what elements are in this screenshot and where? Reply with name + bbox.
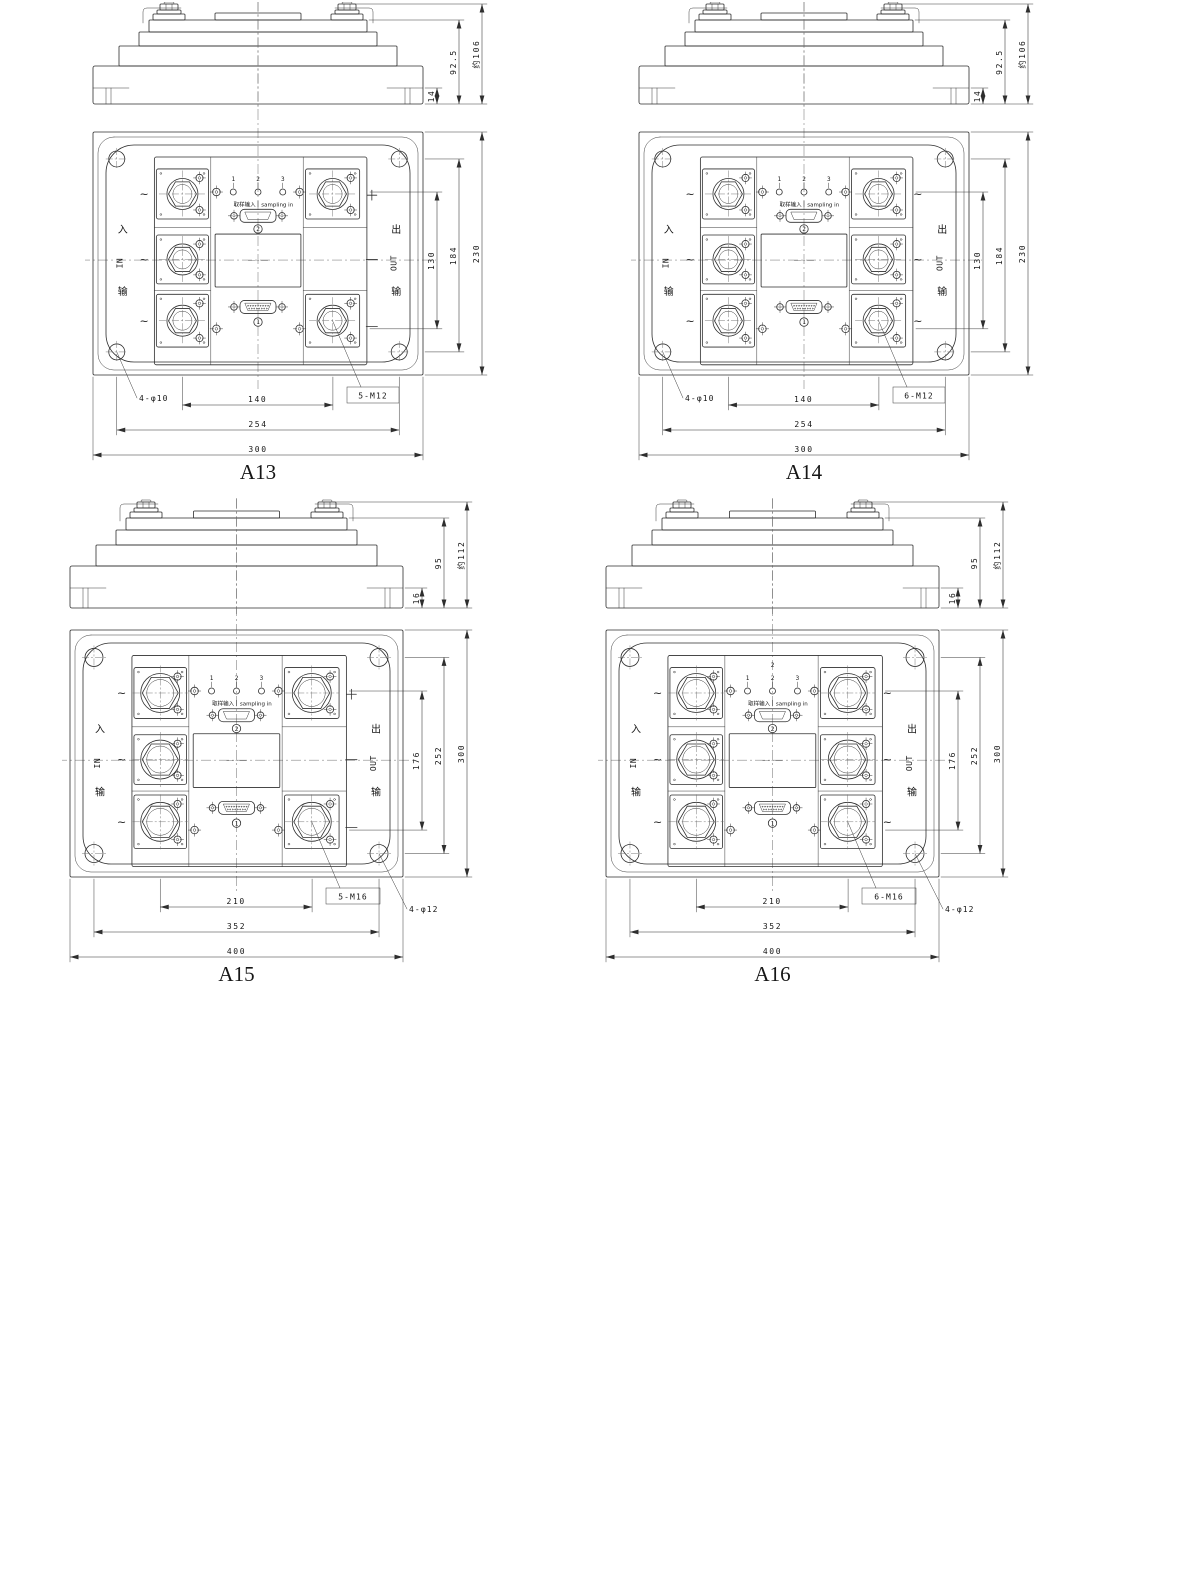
svg-text:300: 300: [794, 445, 813, 454]
svg-text:OUT: OUT: [369, 755, 378, 771]
svg-text:IN: IN: [662, 258, 671, 269]
svg-text:取样输入: 取样输入: [234, 200, 257, 208]
a16-drawing: 1695约112~~~~~~入IN输出OUT输123取样输入sampling i…: [598, 498, 1038, 992]
horizontal-dimensions: 210352400: [70, 879, 403, 962]
svg-text:1: 1: [256, 319, 260, 326]
svg-text:230: 230: [472, 244, 481, 263]
svg-text:1: 1: [777, 176, 781, 183]
svg-text:210: 210: [763, 897, 782, 906]
top-view: ~~~: [62, 498, 416, 891]
svg-text:~: ~: [913, 253, 922, 266]
svg-text:95: 95: [970, 557, 979, 570]
svg-text:sampling in: sampling in: [240, 702, 272, 708]
svg-text:2: 2: [235, 675, 239, 682]
svg-text:3: 3: [281, 176, 285, 183]
svg-text:400: 400: [763, 947, 782, 956]
svg-text:1: 1: [802, 319, 806, 326]
svg-text:~: ~: [913, 187, 922, 200]
figure-a16: 1695约112~~~~~~入IN输出OUT输123取样输入sampling i…: [598, 498, 1038, 996]
svg-text:3: 3: [827, 176, 831, 183]
top-view: ~~~~~~: [631, 2, 982, 389]
svg-text:252: 252: [970, 746, 979, 765]
figure-title: A16: [754, 962, 790, 986]
vertical-dimensions: 130184230: [916, 132, 1033, 375]
svg-text:入: 入: [95, 725, 105, 736]
svg-text:2: 2: [256, 176, 260, 183]
svg-text:~: ~: [140, 187, 149, 200]
svg-text:取样输入: 取样输入: [212, 700, 235, 708]
svg-text:254: 254: [248, 420, 267, 429]
a13-drawing: 1492.5约106~~~入IN输出OUT输123取样输入sampling in…: [85, 2, 505, 496]
svg-text:3: 3: [260, 675, 264, 682]
svg-text:sampling in: sampling in: [776, 702, 808, 708]
drawing-sheet: 1492.5约106~~~入IN输出OUT输123取样输入sampling in…: [0, 0, 1200, 1596]
svg-text:出: 出: [937, 223, 947, 236]
svg-text:14: 14: [427, 90, 436, 103]
svg-text:~: ~: [686, 187, 695, 200]
svg-text:取样输入: 取样输入: [780, 200, 803, 208]
horizontal-dimensions: 210352400: [606, 879, 939, 962]
svg-text:6-M12: 6-M12: [904, 392, 934, 401]
svg-text:4-φ12: 4-φ12: [945, 905, 975, 914]
svg-text:~: ~: [653, 753, 662, 766]
svg-text:14: 14: [973, 90, 982, 103]
figure-a15: 1695约112~~~入IN输出OUT输123取样输入sampling in21…: [62, 498, 502, 996]
svg-text:300: 300: [248, 445, 267, 454]
svg-text:184: 184: [449, 246, 458, 265]
svg-text:1: 1: [210, 675, 214, 682]
svg-text:约106: 约106: [1017, 40, 1027, 69]
figure-title: A15: [218, 962, 254, 986]
svg-text:IN: IN: [629, 758, 638, 769]
svg-text:约112: 约112: [992, 541, 1002, 570]
svg-text:140: 140: [248, 395, 267, 404]
svg-text:140: 140: [794, 395, 813, 404]
svg-text:4-φ12: 4-φ12: [409, 905, 439, 914]
svg-text:~: ~: [883, 815, 892, 828]
svg-text:取样输入: 取样输入: [748, 700, 771, 708]
svg-text:~: ~: [117, 686, 126, 699]
vertical-dimensions: 176252300: [885, 630, 1008, 877]
a14-drawing: 1492.5约106~~~~~~入IN输出OUT输123取样输入sampling…: [631, 2, 1051, 496]
svg-text:~: ~: [883, 686, 892, 699]
svg-text:输: 输: [664, 285, 674, 298]
figure-title: A14: [786, 460, 823, 484]
svg-text:~: ~: [117, 753, 126, 766]
svg-text:2: 2: [802, 176, 806, 183]
svg-text:352: 352: [227, 922, 246, 931]
svg-text:176: 176: [948, 751, 957, 770]
svg-text:230: 230: [1018, 244, 1027, 263]
svg-text:95: 95: [434, 557, 443, 570]
svg-text:4-φ10: 4-φ10: [685, 394, 715, 403]
vertical-dimensions: 176252300: [349, 630, 472, 877]
side-view-dimensions: 1695约112: [869, 502, 1008, 608]
svg-text:输: 输: [937, 285, 947, 298]
svg-text:400: 400: [227, 947, 246, 956]
horizontal-dimensions: 140254300: [639, 377, 969, 460]
svg-text:输: 输: [95, 786, 105, 799]
svg-text:入: 入: [118, 225, 128, 236]
svg-text:sampling in: sampling in: [807, 202, 839, 208]
a15-drawing: 1695约112~~~入IN输出OUT输123取样输入sampling in21…: [62, 498, 502, 992]
svg-text:~: ~: [686, 253, 695, 266]
svg-text:~: ~: [913, 314, 922, 327]
svg-text:184: 184: [995, 246, 1004, 265]
svg-text:出: 出: [907, 723, 917, 736]
svg-text:IN: IN: [116, 258, 125, 269]
svg-text:输: 输: [631, 786, 641, 799]
svg-text:130: 130: [973, 251, 982, 270]
svg-text:IN: IN: [93, 758, 102, 769]
svg-text:4-φ10: 4-φ10: [139, 394, 169, 403]
svg-text:输: 输: [118, 285, 128, 298]
svg-text:5-M12: 5-M12: [358, 392, 388, 401]
svg-text:2: 2: [771, 726, 775, 733]
svg-text:1: 1: [746, 675, 750, 682]
svg-text:约106: 约106: [471, 40, 481, 69]
svg-text:300: 300: [457, 744, 466, 763]
top-view: ~~~~~~: [598, 498, 952, 891]
svg-text:300: 300: [993, 744, 1002, 763]
svg-text:92.5: 92.5: [995, 49, 1004, 75]
svg-text:2: 2: [235, 726, 239, 733]
svg-text:入: 入: [664, 225, 674, 236]
svg-text:~: ~: [653, 815, 662, 828]
top-view: ~~~: [85, 2, 436, 389]
svg-text:出: 出: [371, 723, 381, 736]
figure-a14: 1492.5约106~~~~~~入IN输出OUT输123取样输入sampling…: [631, 2, 1051, 500]
side-view-dimensions: 1695约112: [333, 502, 472, 608]
svg-text:约112: 约112: [456, 541, 466, 570]
svg-text:1: 1: [771, 820, 775, 827]
svg-text:OUT: OUT: [905, 755, 914, 771]
svg-text:~: ~: [140, 253, 149, 266]
svg-text:2: 2: [802, 226, 806, 233]
svg-text:入: 入: [631, 725, 641, 736]
svg-text:出: 出: [391, 223, 401, 236]
horizontal-dimensions: 140254300: [93, 377, 423, 460]
svg-text:1: 1: [235, 820, 239, 827]
svg-text:~: ~: [140, 314, 149, 327]
svg-text:16: 16: [412, 592, 421, 605]
svg-text:92.5: 92.5: [449, 49, 458, 75]
svg-text:176: 176: [412, 751, 421, 770]
figure-a13: 1492.5约106~~~入IN输出OUT输123取样输入sampling in…: [85, 2, 505, 500]
svg-text:6-M16: 6-M16: [874, 893, 904, 902]
svg-text:输: 输: [391, 285, 401, 298]
svg-text:2: 2: [771, 675, 775, 682]
svg-text:3: 3: [796, 675, 800, 682]
svg-text:254: 254: [794, 420, 813, 429]
svg-text:OUT: OUT: [389, 255, 398, 271]
svg-text:252: 252: [434, 746, 443, 765]
svg-text:输: 输: [371, 786, 381, 799]
svg-text:16: 16: [948, 592, 957, 605]
vertical-dimensions: 130184230: [370, 132, 487, 375]
svg-text:~: ~: [686, 314, 695, 327]
svg-text:1: 1: [231, 176, 235, 183]
svg-text:sampling in: sampling in: [261, 202, 293, 208]
svg-text:OUT: OUT: [935, 255, 944, 271]
svg-text:~: ~: [653, 686, 662, 699]
svg-text:352: 352: [763, 922, 782, 931]
svg-text:2: 2: [256, 226, 260, 233]
svg-text:210: 210: [227, 897, 246, 906]
svg-text:2: 2: [771, 662, 775, 669]
svg-text:~: ~: [883, 753, 892, 766]
svg-text:~: ~: [117, 815, 126, 828]
figure-title: A13: [240, 460, 276, 484]
svg-text:输: 输: [907, 786, 917, 799]
svg-text:130: 130: [427, 251, 436, 270]
svg-text:5-M16: 5-M16: [338, 893, 368, 902]
